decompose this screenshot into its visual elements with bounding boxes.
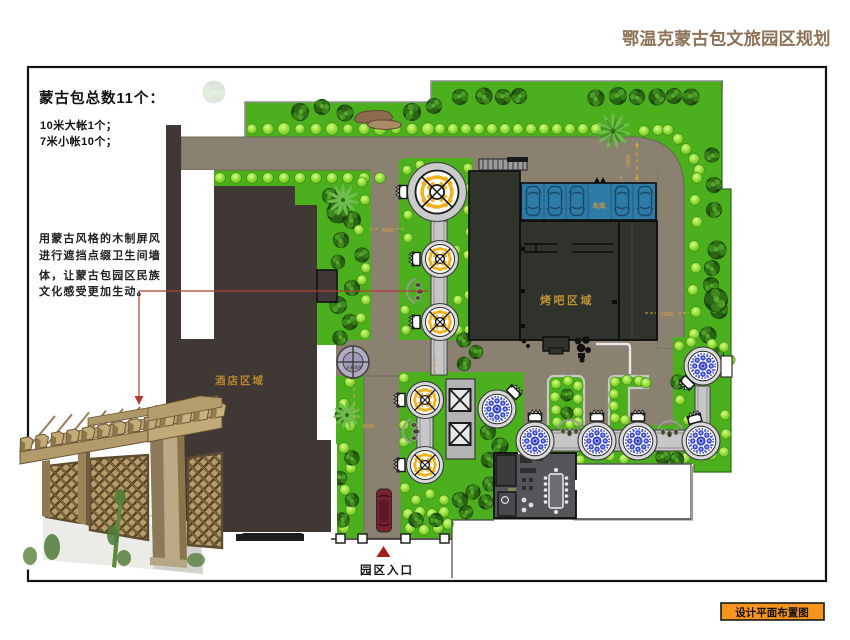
svg-text:7800: 7800: [626, 155, 632, 167]
svg-text:进行遮挡点缀卫生间墙: 进行遮挡点缀卫生间墙: [39, 248, 161, 262]
svg-text:蒙古包总数11个：: 蒙古包总数11个：: [39, 89, 165, 107]
svg-text:体，让蒙古包园区民族: 体，让蒙古包园区民族: [39, 268, 161, 282]
svg-text:酒店区域: 酒店区域: [215, 374, 265, 387]
svg-text:6000: 6000: [382, 228, 394, 234]
svg-text:10米大帐1个；: 10米大帐1个；: [40, 118, 117, 132]
svg-text:鄂温克蒙古包文旅园区规划: 鄂温克蒙古包文旅园区规划: [622, 29, 831, 49]
svg-text:4000: 4000: [362, 424, 374, 430]
svg-text:7米小帐10个；: 7米小帐10个；: [40, 134, 117, 148]
svg-text:设计平面布置图: 设计平面布置图: [735, 606, 809, 619]
svg-text:车库: 车库: [593, 201, 607, 210]
svg-text:烤吧区域: 烤吧区域: [540, 293, 594, 307]
svg-text:园区入口: 园区入口: [360, 563, 414, 577]
svg-text:文化感受更加生动。: 文化感受更加生动。: [39, 284, 149, 298]
svg-text:5000: 5000: [661, 312, 673, 318]
svg-text:水景喷泉: 水景喷泉: [346, 364, 362, 370]
svg-text:用蒙古风格的木制屏风: 用蒙古风格的木制屏风: [39, 231, 161, 245]
